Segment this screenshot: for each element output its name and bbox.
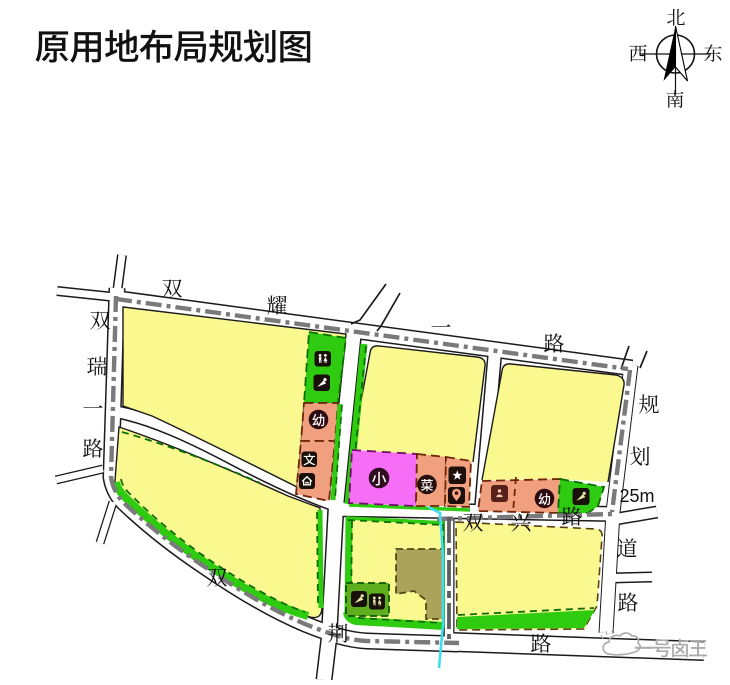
svg-text:25m: 25m xyxy=(619,486,654,506)
